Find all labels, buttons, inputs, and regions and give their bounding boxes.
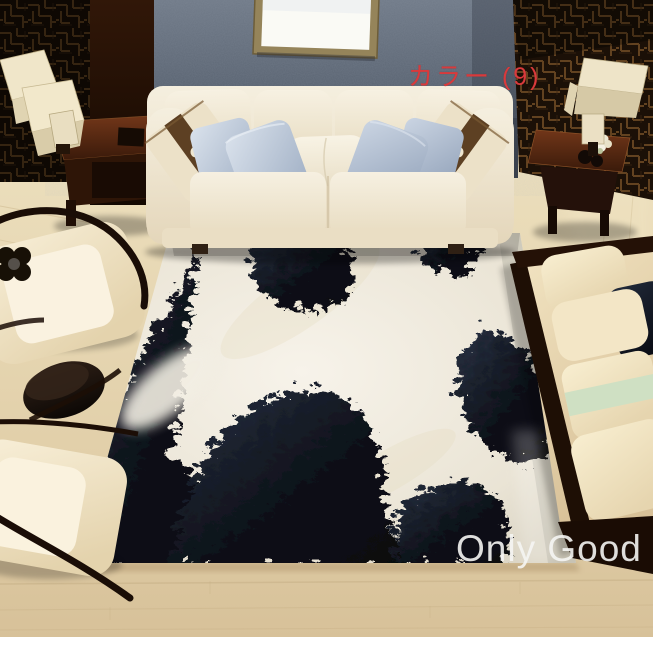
shop-watermark: Only Good bbox=[456, 528, 642, 570]
sofa bbox=[143, 86, 515, 264]
sofa-seat-cushions bbox=[190, 172, 466, 236]
sofa-foot-left bbox=[192, 244, 208, 254]
picture-frame bbox=[253, 0, 379, 61]
product-photo: カラー (9) Only Good bbox=[0, 0, 653, 653]
bottom-margin bbox=[0, 637, 653, 653]
color-option-label: カラー (9) bbox=[408, 57, 588, 93]
sofa-foot-right bbox=[448, 244, 464, 254]
